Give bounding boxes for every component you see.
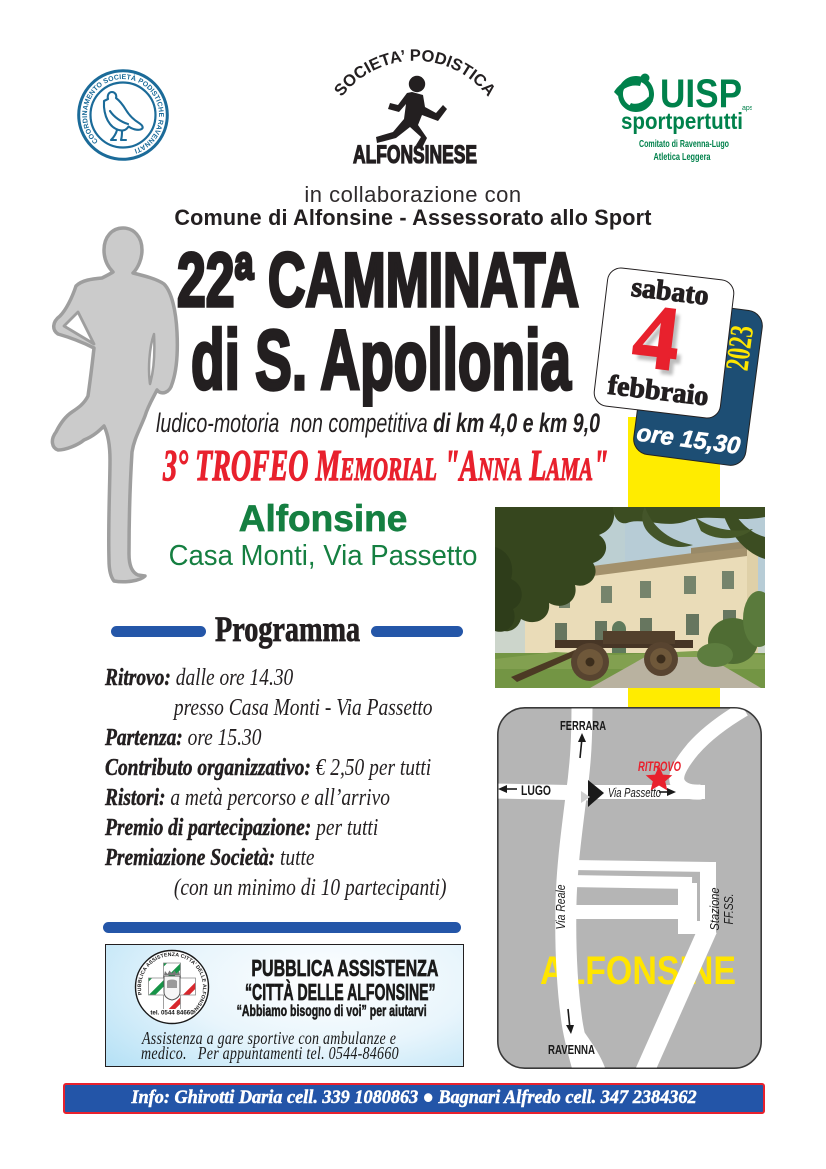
svg-text:COORDINAMENTO SOCIETÀ PODISTIC: COORDINAMENTO SOCIETÀ PODISTICHE RAVENNA… <box>82 73 164 154</box>
svg-text:Atletica Leggera: Atletica Leggera <box>654 152 711 163</box>
svg-text:Comitato di Ravenna-Lugo: Comitato di Ravenna-Lugo <box>639 139 729 150</box>
svg-text:Via Reale: Via Reale <box>553 885 568 930</box>
svg-text:sportpertutti: sportpertutti <box>621 108 743 134</box>
svg-text:22ª CAMMINATA: 22ª CAMMINATA <box>177 240 579 312</box>
svg-text:di S. Apollonia: di S. Apollonia <box>191 315 572 407</box>
svg-text:RAVENNA: RAVENNA <box>548 1042 595 1057</box>
svg-text:ALFONSINESE: ALFONSINESE <box>353 141 477 169</box>
svg-text:aps: aps <box>742 105 752 112</box>
svg-text:LUGO: LUGO <box>521 783 551 798</box>
svg-text:FERRARA: FERRARA <box>560 718 606 733</box>
svg-text:Stazione: Stazione <box>707 888 722 931</box>
svg-text:tel. 0544 84660: tel. 0544 84660 <box>150 1010 194 1017</box>
svg-text:FF.SS.: FF.SS. <box>721 894 736 925</box>
